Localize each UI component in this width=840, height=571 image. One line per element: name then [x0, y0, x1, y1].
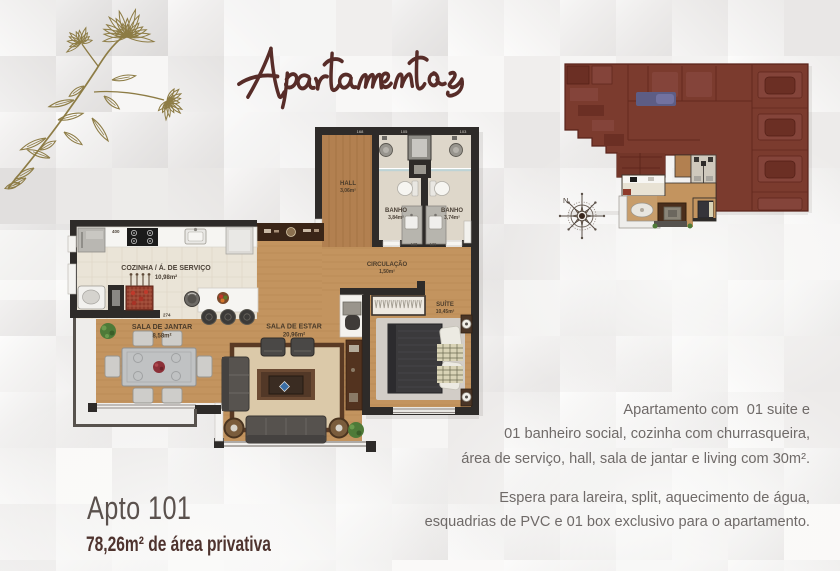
svg-text:N: N [563, 196, 568, 205]
svg-text:10,98m²: 10,98m² [155, 274, 177, 281]
svg-text:SUÍTE: SUÍTE [436, 300, 454, 308]
svg-text:CIRCULAÇÃO: CIRCULAÇÃO [367, 261, 408, 268]
svg-text:274: 274 [163, 313, 171, 318]
svg-text:BANHO: BANHO [385, 208, 407, 214]
svg-text:105: 105 [401, 129, 408, 134]
svg-text:3,74m²: 3,74m² [444, 215, 460, 221]
svg-text:COZINHA / Á. DE SERVIÇO: COZINHA / Á. DE SERVIÇO [121, 263, 211, 272]
svg-text:400: 400 [112, 229, 120, 234]
svg-text:3,84m²: 3,84m² [388, 215, 404, 221]
svg-text:SALA DE ESTAR: SALA DE ESTAR [266, 324, 322, 331]
svg-text:SALA DE JANTAR: SALA DE JANTAR [132, 324, 192, 331]
svg-text:HALL: HALL [340, 181, 356, 187]
svg-text:8,58m²: 8,58m² [152, 333, 171, 340]
svg-text:103: 103 [460, 129, 467, 134]
svg-text:20,96m²: 20,96m² [283, 332, 305, 339]
svg-text:130: 130 [430, 242, 437, 247]
svg-text:10,45m²: 10,45m² [436, 309, 455, 315]
svg-text:1,50m²: 1,50m² [379, 269, 395, 275]
svg-text:BANHO: BANHO [441, 208, 463, 214]
svg-text:135: 135 [411, 242, 418, 247]
svg-text:3,06m²: 3,06m² [340, 188, 356, 194]
svg-text:168: 168 [357, 129, 364, 134]
